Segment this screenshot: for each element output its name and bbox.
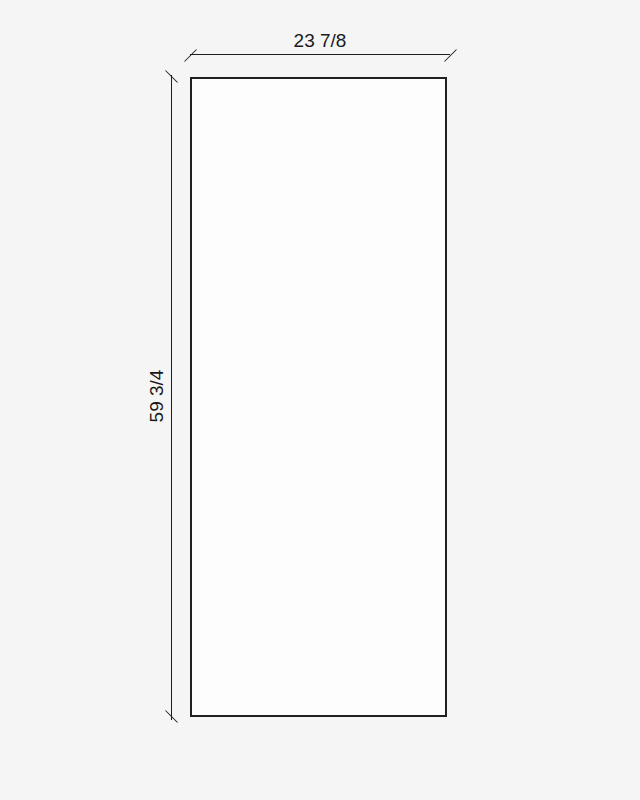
height-dimension-label: 59 3/4 — [146, 370, 168, 423]
width-dimension-line — [190, 54, 450, 55]
panel-rectangle — [190, 77, 447, 717]
height-dimension-line — [171, 75, 172, 720]
drawing-canvas: 23 7/8 59 3/4 — [0, 0, 640, 800]
width-dimension-label: 23 7/8 — [190, 30, 450, 52]
